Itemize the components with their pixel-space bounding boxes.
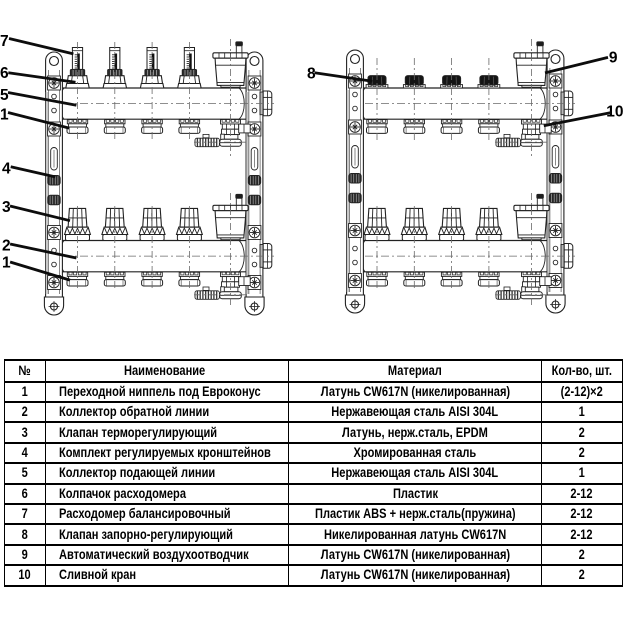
svg-text:7: 7 — [0, 33, 9, 50]
svg-text:5: 5 — [0, 87, 9, 104]
svg-text:4: 4 — [2, 161, 11, 178]
svg-text:3: 3 — [2, 199, 11, 216]
svg-text:1: 1 — [0, 107, 9, 124]
svg-text:2: 2 — [2, 238, 11, 255]
svg-text:1: 1 — [2, 255, 11, 272]
svg-text:9: 9 — [609, 50, 618, 67]
svg-text:6: 6 — [0, 65, 9, 82]
